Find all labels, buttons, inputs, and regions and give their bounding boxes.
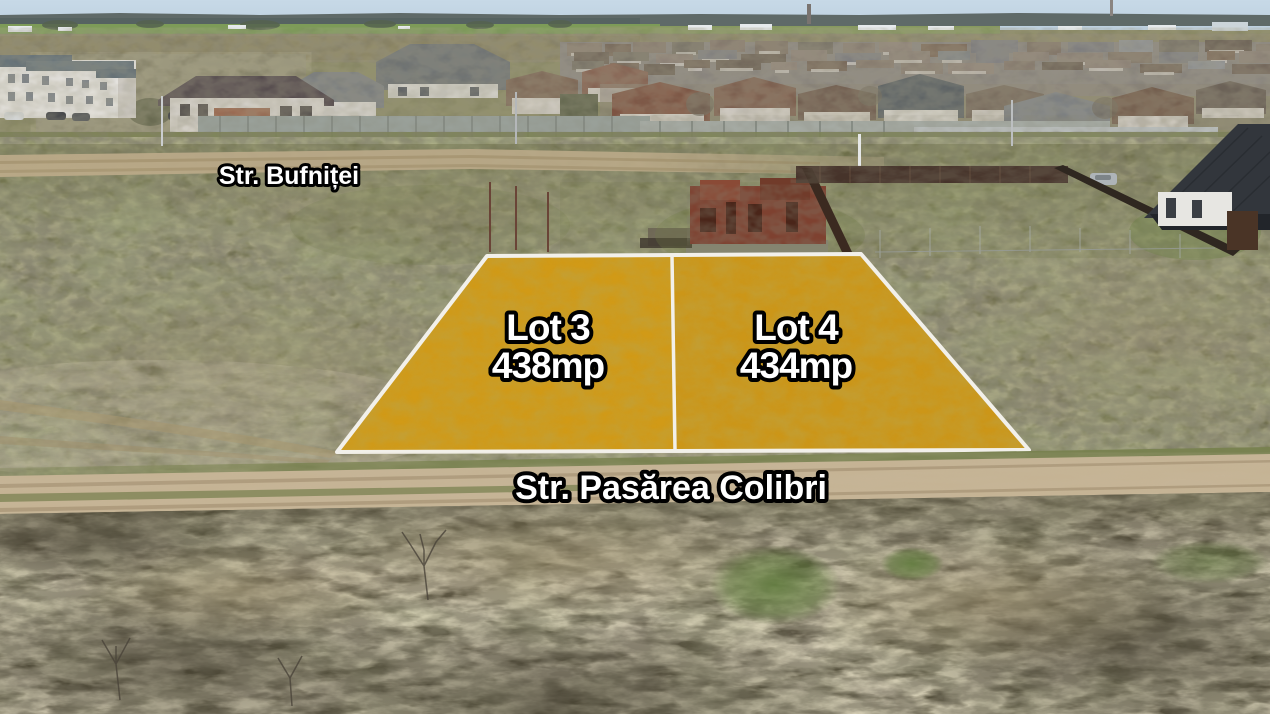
svg-text:Str. Bufniței: Str. Bufniței: [219, 162, 359, 190]
svg-text:434mp: 434mp: [740, 345, 853, 386]
svg-text:Lot 3: Lot 3: [506, 307, 590, 348]
svg-text:Lot 4: Lot 4: [754, 307, 839, 348]
svg-text:438mp: 438mp: [492, 345, 605, 386]
svg-text:Str. Pasărea Colibri: Str. Pasărea Colibri: [515, 469, 827, 507]
